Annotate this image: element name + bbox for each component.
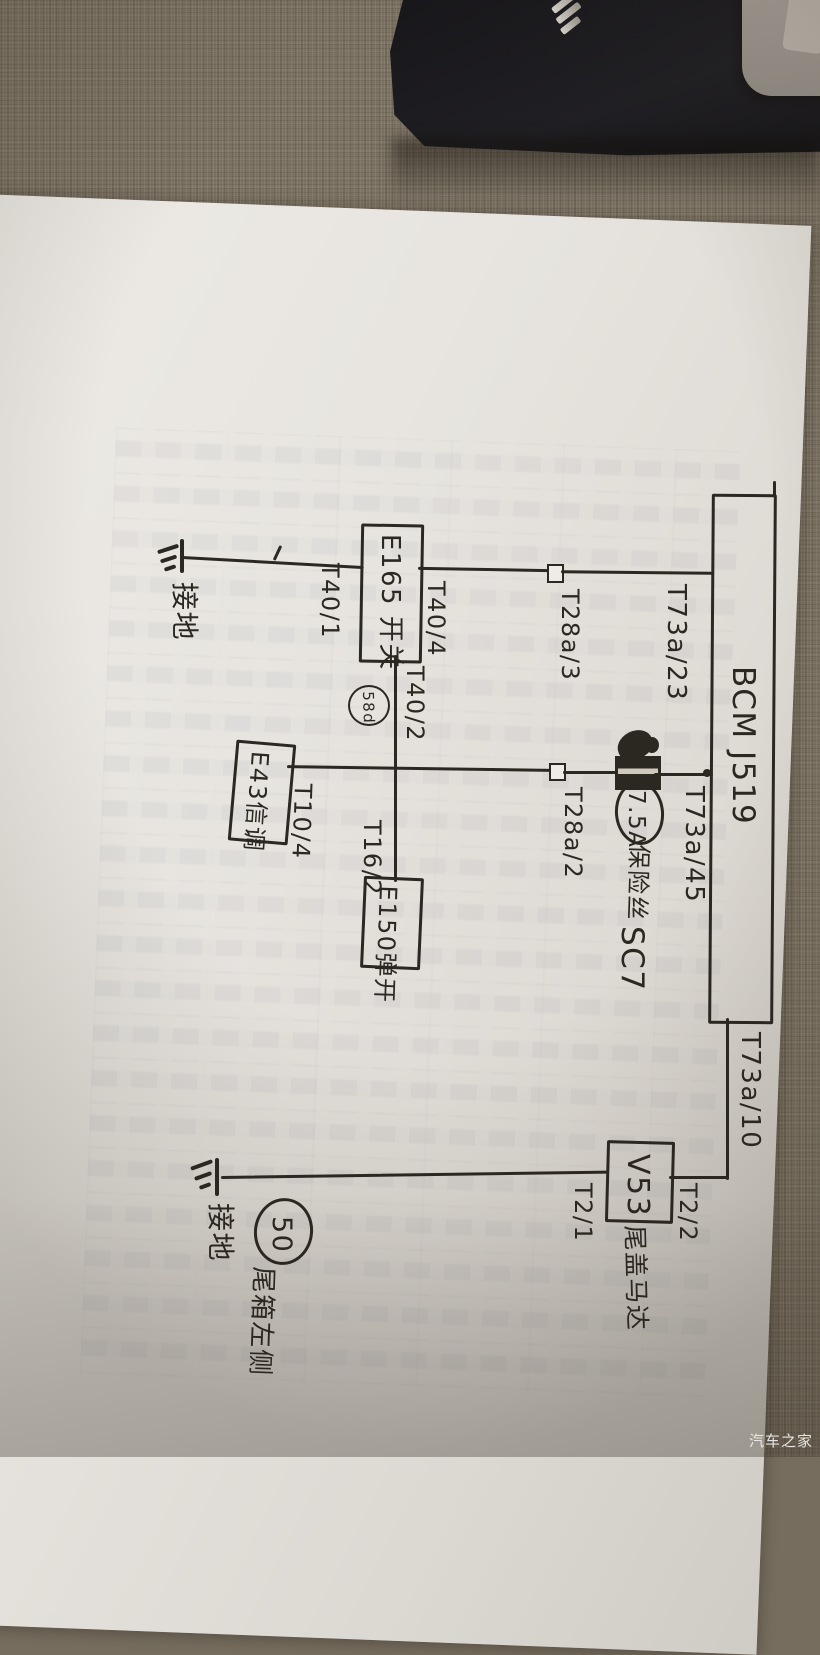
wire-bcm-down xyxy=(726,1018,729,1180)
node-58d-label: 58d xyxy=(360,691,376,724)
fuse-blob-small xyxy=(645,737,659,753)
component-name-v53: 尾盖马达 xyxy=(622,1225,650,1332)
component-label-e165: E165 开关 xyxy=(377,534,403,671)
watermark: 汽车之家 xyxy=(749,1430,813,1451)
fuse-rating-label: 7.5A xyxy=(624,790,647,848)
junction-dot-bcm xyxy=(703,769,711,777)
wire-v53-to-ground xyxy=(221,1171,609,1179)
ground-symbol-top-stroke1 xyxy=(157,544,179,554)
terminal-label-t40-4: T40/4 xyxy=(424,581,448,657)
ground-label-bottom: 接地 xyxy=(206,1203,234,1262)
terminal-label-t2-2: T2/2 xyxy=(676,1183,700,1242)
terminal-label-t73a-45: T73a/45 xyxy=(681,786,707,903)
ground-symbol-top-stroke3 xyxy=(164,564,176,571)
terminal-label-t40-1: T40/1 xyxy=(318,563,342,639)
wire-splice-tick xyxy=(273,545,282,561)
wire-down-to-v53 xyxy=(669,1176,729,1179)
ground-symbol-top-stroke2 xyxy=(160,554,177,563)
terminal-label-t73a-23: T73a/23 xyxy=(663,584,689,701)
terminal-label-t10-4: T10/4 xyxy=(288,783,315,860)
terminal-label-t28a-3: T28a/3 xyxy=(558,589,582,681)
fuse-circuit-label: SC7 xyxy=(616,926,647,992)
ground-symbol-bottom-stroke3 xyxy=(199,1182,211,1189)
ground-point-number: 50 xyxy=(268,1216,295,1253)
ground-symbol-bottom-bar xyxy=(215,1158,219,1196)
bcm-top-tick xyxy=(773,481,776,497)
wire-t28a2-to-fuse xyxy=(563,771,618,774)
wire-t28a3-to-bcm xyxy=(561,570,713,575)
component-label-e43: E43信调 xyxy=(241,750,272,853)
wire-e165-down xyxy=(394,655,397,774)
terminal-label-t2-1: T2/1 xyxy=(571,1183,595,1242)
bcm-label: BCM J519 xyxy=(727,666,758,825)
wiring-diagram: BCM J519 接地 E165 开关 T40/1 T40/4 T28a/3 T… xyxy=(0,0,820,1457)
terminal-label-t73a-10: T73a/10 xyxy=(737,1032,763,1149)
wire-e165-to-t28a3 xyxy=(418,567,550,572)
component-label-v53: V53 xyxy=(622,1154,652,1217)
terminal-label-t40-2: T40/2 xyxy=(403,666,427,742)
ground-symbol-bottom-stroke1 xyxy=(190,1159,213,1170)
component-label-e150: E150弹开 xyxy=(372,885,400,1004)
connector-t28a3 xyxy=(547,564,564,583)
wire-e43-to-t28a2 xyxy=(287,765,552,772)
ground-label-top: 接地 xyxy=(170,582,198,641)
wire-junction-to-e150 xyxy=(394,772,397,882)
terminal-label-t28a-2: T28a/2 xyxy=(561,787,585,879)
ground-point-location: 尾箱左侧 xyxy=(246,1266,276,1377)
fuse-name-label: 保险丝 xyxy=(624,844,651,921)
ground-symbol-bottom-stroke2 xyxy=(194,1171,212,1180)
